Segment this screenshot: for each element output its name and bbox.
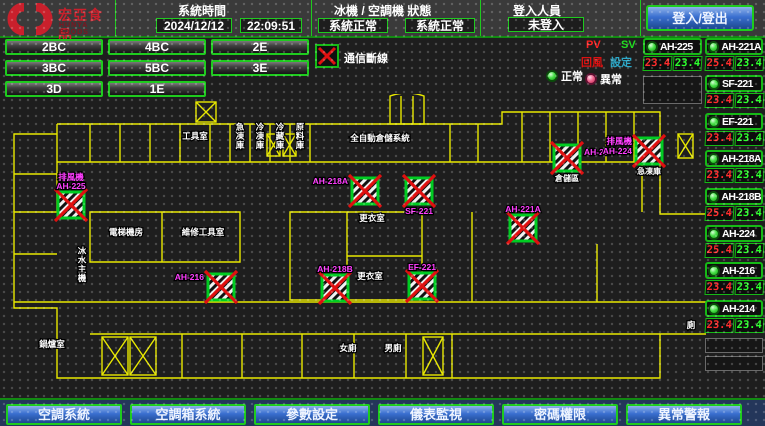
nav-button-5[interactable]: 密碼權限 <box>502 404 618 425</box>
company-logo: 宏亞食品 HUNYA FOODS <box>6 3 112 35</box>
unit-led-icon <box>708 303 720 315</box>
unit-sv-value: 23.4 <box>734 243 764 258</box>
unit-led-icon <box>708 78 720 90</box>
stairwell-icon <box>102 337 128 375</box>
header-divider <box>311 0 312 36</box>
return-air-header-label: 回風 <box>581 54 603 70</box>
comm-loss-label: 通信斷線 <box>344 50 388 66</box>
empty-panel <box>705 356 763 371</box>
nav-button-3[interactable]: 參數設定 <box>254 404 370 425</box>
unit-sv-value: 23.4 <box>734 280 764 295</box>
unit-pv-value: 25.4 <box>704 206 734 221</box>
empty-panel <box>705 338 763 353</box>
room-label: 冰水主機 <box>77 246 87 283</box>
legend-abnormal: 異常 <box>585 71 622 87</box>
nav-button-4[interactable]: 儀表監視 <box>378 404 494 425</box>
device-label: SF-221 <box>405 206 433 216</box>
floor-button-3E[interactable]: 3E <box>211 60 309 76</box>
unit-values-AH-221A: 25.423.4 <box>705 56 763 71</box>
unit-values-EF-221: 23.423.4 <box>705 131 763 146</box>
unit-values-AH-216: 23.423.4 <box>705 280 763 295</box>
room-label: 電梯機房 <box>109 227 143 237</box>
device-sublabel: 急凍庫 <box>637 166 661 176</box>
room-label: 更衣室 <box>357 271 383 281</box>
unit-pv-value: 23.4 <box>704 131 734 146</box>
ahu-device-icon-AH-221A[interactable]: AH-221A <box>505 204 540 244</box>
floor-button-3BC[interactable]: 3BC <box>5 60 103 76</box>
unit-values-AH-225: 23.423.4 <box>643 56 702 71</box>
room-label: 更衣室 <box>359 213 385 223</box>
room-label: 女廁 <box>339 343 357 353</box>
header-divider <box>640 0 641 36</box>
room-label: 廁 <box>687 320 696 330</box>
device-sublabel: 倉儲區 <box>554 173 579 183</box>
ahu-device-icon-AH-218A[interactable]: AH-218A <box>313 175 381 207</box>
unit-name-label: AH-216 <box>722 265 755 277</box>
ahu-device-icon-AH-218B[interactable]: AH-218B <box>317 264 352 304</box>
device-label: AH-224 <box>603 146 633 156</box>
ahu-device-icon-SF-221[interactable]: SF-221 <box>403 175 435 216</box>
device-label: AH-218B <box>317 264 352 274</box>
unit-led-icon <box>708 228 720 240</box>
nav-button-1[interactable]: 空調系統 <box>6 404 122 425</box>
empty-panel <box>643 76 702 104</box>
unit-row-EF-221[interactable]: EF-221 <box>705 113 763 130</box>
bottom-nav-bar: 空調系統空調箱系統參數設定儀表監視密碼權限異常警報 <box>0 398 765 426</box>
unit-led-icon <box>708 41 719 53</box>
unit-sv-value: 23.4 <box>734 131 764 146</box>
unit-sv-value: 23.4 <box>734 206 764 221</box>
ac-status-value: 系統正常 <box>405 18 475 33</box>
unit-pv-value: 23.4 <box>704 280 734 295</box>
floor-button-4BC[interactable]: 4BC <box>108 39 206 55</box>
unit-pv-value: 25.4 <box>704 243 734 258</box>
unit-led-icon <box>708 153 719 165</box>
comm-loss-icon <box>315 44 339 68</box>
stairwell-icon <box>130 337 156 375</box>
unit-pv-value: 23.4 <box>704 318 734 333</box>
unit-sv-value: 23.4 <box>734 56 764 71</box>
stairwell-icon <box>678 134 693 158</box>
unit-values-AH-214: 23.423.4 <box>705 318 763 333</box>
device-label: AH-218A <box>313 176 348 186</box>
floor-plan-map: 排風機AH-225AH-216AH-218BAH-218ASF-221EF-22… <box>2 94 708 398</box>
unit-row-AH-221A[interactable]: AH-221A <box>705 38 763 55</box>
room-label: 急凍庫 <box>236 122 245 150</box>
device-label: AH-216 <box>175 272 205 282</box>
unit-pv-value: 23.4 <box>704 168 734 183</box>
nav-button-6[interactable]: 異常警報 <box>626 404 742 425</box>
ahu-device-icon-EF-221[interactable]: EF-221 <box>406 262 438 302</box>
unit-pv-value: 25.4 <box>704 56 734 71</box>
unit-values-AH-218A: 23.423.4 <box>705 168 763 183</box>
unit-values-AH-218B: 25.423.4 <box>705 206 763 221</box>
ahu-device-icon-AH-216[interactable]: AH-216 <box>175 271 237 303</box>
unit-led-icon <box>708 191 719 203</box>
chiller-status-value: 系統正常 <box>318 18 388 33</box>
machine-status-title: 冰機 / 空調機 狀態 <box>334 2 431 19</box>
ahu-device-icon-AH-225[interactable]: 排風機AH-225 <box>55 172 87 221</box>
sv-header-label: SV <box>621 39 636 51</box>
floor-button-2E[interactable]: 2E <box>211 39 309 55</box>
room-label: 工具室 <box>182 131 208 141</box>
unit-sv-value: 23.4 <box>734 168 764 183</box>
legend-abnormal-label: 異常 <box>600 71 622 87</box>
room-label: 原料庫 <box>296 122 305 150</box>
unit-name-label: SF-221 <box>722 78 753 90</box>
header-divider <box>115 0 116 36</box>
device-label: AH-221A <box>505 204 540 214</box>
unit-values-SF-221: 23.423.4 <box>705 93 763 108</box>
room-label: 冷凍庫 <box>256 122 265 150</box>
floor-button-2BC[interactable]: 2BC <box>5 39 103 55</box>
system-time-value: 22:09:51 <box>240 18 302 33</box>
unit-row-AH-216[interactable]: AH-216 <box>705 262 763 279</box>
unit-led-icon <box>708 265 720 277</box>
logo-mark-icon <box>6 3 54 35</box>
unit-values-AH-224: 25.423.4 <box>705 243 763 258</box>
unit-led-icon <box>646 41 658 53</box>
unit-name-label: AH-221A <box>721 41 761 53</box>
unit-led-icon <box>708 116 720 128</box>
login-logout-button[interactable]: 登入/登出 <box>646 5 754 31</box>
abnormal-led-icon <box>585 73 597 85</box>
unit-pv-value: 23.4 <box>704 93 734 108</box>
logo-subtext: HUNYA FOODS <box>59 22 112 36</box>
unit-sv-value: 23.4 <box>672 56 702 71</box>
unit-row-AH-225[interactable]: AH-225 <box>643 38 702 55</box>
unit-sv-value: 23.4 <box>734 318 764 333</box>
pv-header-label: PV <box>586 39 601 51</box>
unit-pv-value: 23.4 <box>642 56 672 71</box>
unit-row-AH-214[interactable]: AH-214 <box>705 300 763 317</box>
unit-name-label: AH-218B <box>721 191 761 203</box>
header-bar: 宏亞食品 HUNYA FOODS 系統時間 2024/12/12 22:09:5… <box>0 0 765 38</box>
hmi-screen: 宏亞食品 HUNYA FOODS 系統時間 2024/12/12 22:09:5… <box>0 0 765 426</box>
unit-row-AH-218B[interactable]: AH-218B <box>705 188 763 205</box>
stairwell-icon <box>423 337 443 375</box>
header-divider <box>480 0 481 36</box>
legend-normal: 正常 <box>546 68 583 84</box>
floor-selector: 2BC4BC2E3BC5BC3E3D1E <box>5 39 309 97</box>
room-label: 維修工具室 <box>182 227 225 237</box>
device-label: AH-225 <box>56 181 86 191</box>
unit-row-AH-218A[interactable]: AH-218A <box>705 150 763 167</box>
unit-name-label: AH-214 <box>722 303 755 315</box>
stairwell-icon <box>196 102 216 122</box>
system-time-title: 系統時間 <box>178 2 226 19</box>
nav-button-2[interactable]: 空調箱系統 <box>130 404 246 425</box>
system-date-value: 2024/12/12 <box>156 18 232 33</box>
unit-sv-value: 23.4 <box>734 93 764 108</box>
unit-name-label: EF-221 <box>722 116 753 128</box>
room-label: 男廁 <box>384 343 402 353</box>
normal-led-icon <box>546 70 558 82</box>
setpoint-header-label: 設定 <box>610 54 632 70</box>
room-label: 冷藏庫 <box>276 122 285 150</box>
login-user-value: 未登入 <box>508 17 584 32</box>
unit-name-label: AH-225 <box>660 41 693 53</box>
device-label: EF-221 <box>408 262 436 272</box>
unit-row-AH-224[interactable]: AH-224 <box>705 225 763 242</box>
unit-row-SF-221[interactable]: SF-221 <box>705 75 763 92</box>
room-label: 全自動倉儲系統 <box>349 133 410 143</box>
floor-button-5BC[interactable]: 5BC <box>108 60 206 76</box>
unit-name-label: AH-218A <box>721 153 761 165</box>
unit-name-label: AH-224 <box>722 228 755 240</box>
room-label: 鍋爐室 <box>39 339 65 349</box>
legend-normal-label: 正常 <box>561 68 583 84</box>
device-label: 排風機 <box>606 136 632 146</box>
